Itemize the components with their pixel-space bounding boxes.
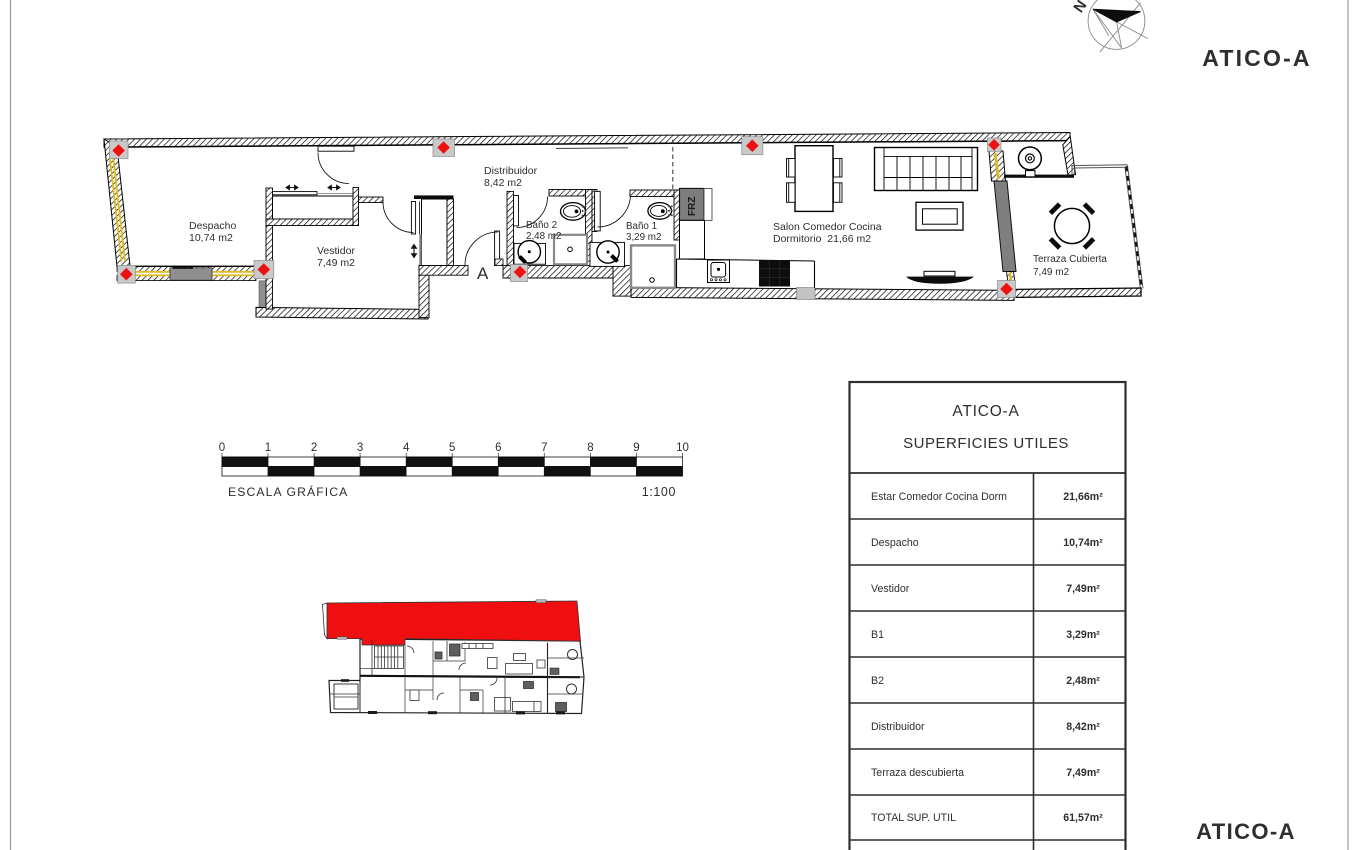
svg-text:ATICO-A: ATICO-A <box>1196 819 1296 844</box>
svg-text:Terraza descubierta: Terraza descubierta <box>871 767 964 779</box>
svg-text:B1: B1 <box>871 629 884 641</box>
svg-text:2: 2 <box>311 442 317 454</box>
svg-text:7,49m²: 7,49m² <box>1066 583 1100 595</box>
svg-text:Dormitorio 21,66 m2: Dormitorio 21,66 m2 <box>773 233 871 245</box>
svg-text:ESCALA GRÁFICA: ESCALA GRÁFICA <box>228 484 348 499</box>
svg-text:FRZ: FRZ <box>687 197 698 216</box>
svg-text:TOTAL SUP. UTIL: TOTAL SUP. UTIL <box>871 812 956 824</box>
svg-text:6: 6 <box>495 442 501 454</box>
svg-text:7,49m²: 7,49m² <box>1066 767 1100 779</box>
svg-text:Baño 2: Baño 2 <box>526 220 557 231</box>
svg-text:1:100: 1:100 <box>642 485 676 499</box>
svg-text:A: A <box>477 264 489 283</box>
svg-text:Vestidor: Vestidor <box>871 583 910 595</box>
svg-text:5: 5 <box>449 442 455 454</box>
svg-text:0: 0 <box>219 442 225 454</box>
svg-text:4: 4 <box>403 442 410 454</box>
svg-text:3: 3 <box>357 442 363 454</box>
svg-text:7: 7 <box>541 442 547 454</box>
svg-text:10,74m²: 10,74m² <box>1063 537 1103 549</box>
svg-text:ATICO-A: ATICO-A <box>952 403 1019 420</box>
svg-text:Estar Comedor Cocina Dorm: Estar Comedor Cocina Dorm <box>871 491 1007 503</box>
svg-text:Distribuidor: Distribuidor <box>871 721 925 733</box>
svg-text:10: 10 <box>676 442 689 454</box>
svg-text:8,42m²: 8,42m² <box>1066 721 1100 733</box>
svg-text:Despacho: Despacho <box>871 537 919 549</box>
svg-text:Vestidor: Vestidor <box>317 245 355 257</box>
svg-text:SUPERFICIES UTILES: SUPERFICIES UTILES <box>903 435 1069 452</box>
svg-text:9: 9 <box>633 442 639 454</box>
svg-text:2,48m²: 2,48m² <box>1066 675 1100 687</box>
svg-text:Terraza Cubierta: Terraza Cubierta <box>1033 254 1107 265</box>
svg-text:3,29 m2: 3,29 m2 <box>626 232 661 243</box>
svg-text:61,57m²: 61,57m² <box>1063 812 1103 824</box>
svg-text:N: N <box>1070 0 1090 16</box>
svg-text:10,74 m2: 10,74 m2 <box>189 232 233 244</box>
svg-text:ATICO-A: ATICO-A <box>1202 45 1312 71</box>
svg-text:8: 8 <box>587 442 593 454</box>
svg-text:21,66m²: 21,66m² <box>1063 491 1103 503</box>
svg-text:3,29m²: 3,29m² <box>1066 629 1100 641</box>
svg-text:7,49 m2: 7,49 m2 <box>317 257 355 269</box>
svg-text:B2: B2 <box>871 675 884 687</box>
svg-text:8,42 m2: 8,42 m2 <box>484 177 522 189</box>
svg-text:Despacho: Despacho <box>189 220 236 232</box>
svg-text:7,49 m2: 7,49 m2 <box>1033 267 1070 278</box>
svg-text:2,48 m2: 2,48 m2 <box>526 231 561 242</box>
svg-text:1: 1 <box>265 442 271 454</box>
svg-text:Salon Comedor Cocina: Salon Comedor Cocina <box>773 221 882 233</box>
svg-text:Distribuidor: Distribuidor <box>484 165 538 177</box>
svg-text:Baño 1: Baño 1 <box>626 221 657 232</box>
